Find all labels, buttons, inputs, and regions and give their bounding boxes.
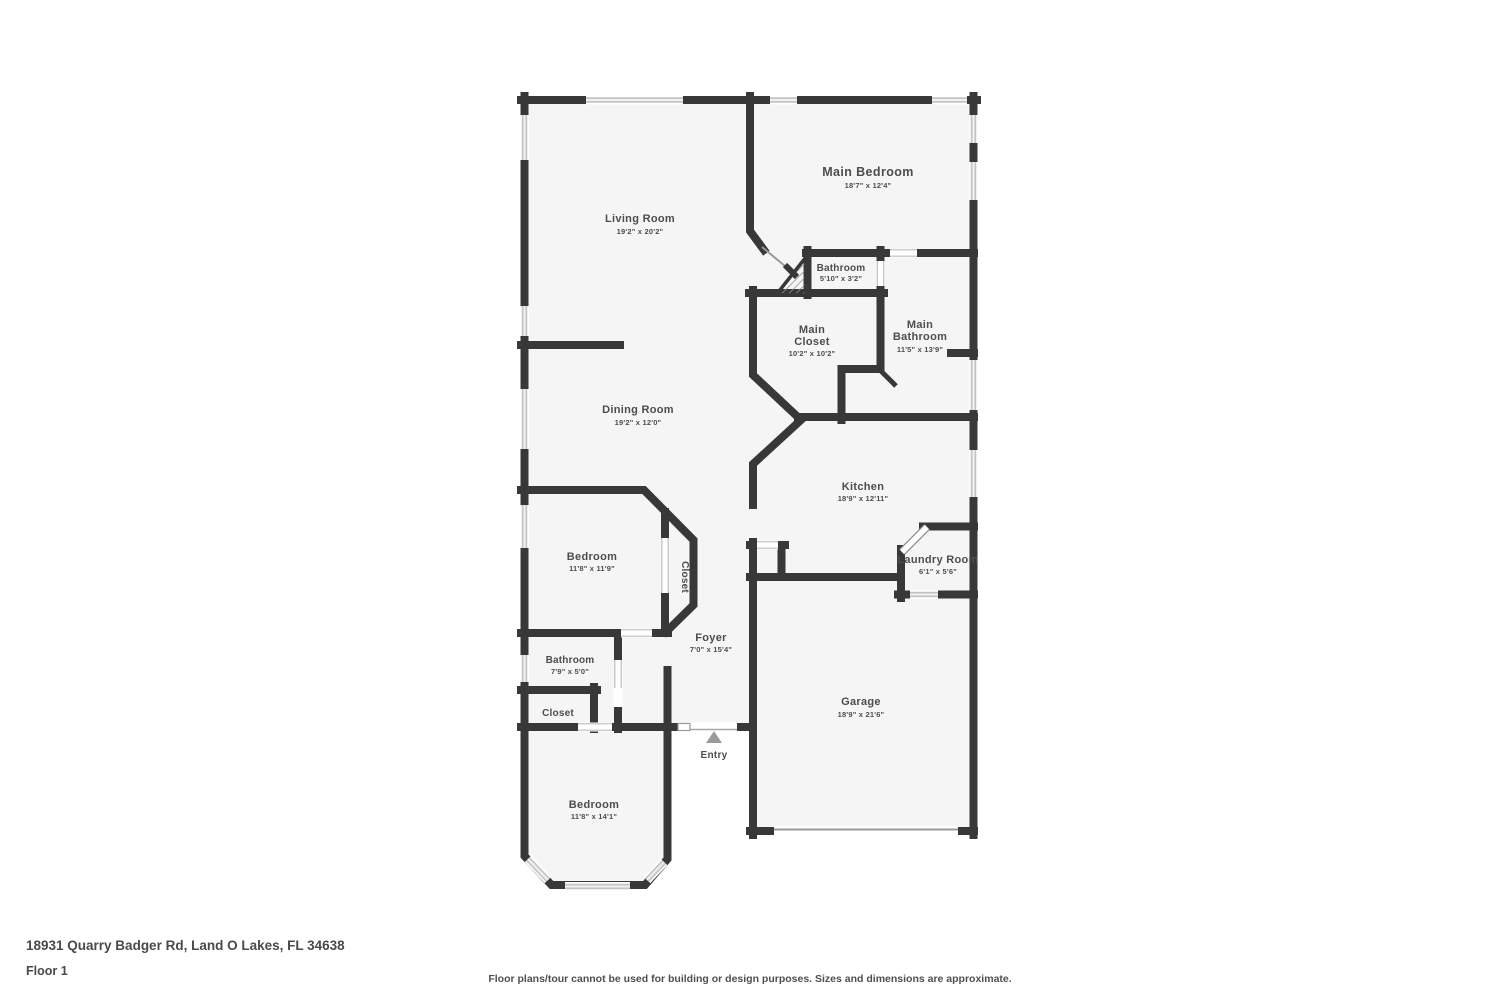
room-dims-kitchen: 18'9" x 12'11" — [838, 494, 889, 503]
room-label-foyer: Foyer — [695, 632, 727, 644]
room-label-main-closet-1: Main — [799, 324, 825, 336]
entry-marker-icon — [706, 731, 722, 743]
room-dims-bedroom-2: 11'8" x 14'1" — [571, 812, 617, 821]
room-dims-bedroom-1: 11'8" x 11'9" — [569, 564, 615, 573]
room-label-bedroom-2: Bedroom — [569, 799, 619, 811]
room-dims-main-closet: 10'2" x 10'2" — [789, 349, 836, 358]
room-label-main-closet-2: Closet — [794, 336, 829, 348]
floorplan-svg: Living Room 19'2" x 20'2" Main Bedroom 1… — [0, 0, 1500, 1000]
room-dims-living-room: 19'2" x 20'2" — [617, 227, 664, 236]
room-label-bathroom-1: Bathroom — [546, 655, 595, 666]
entry-label: Entry — [700, 750, 727, 761]
room-dims-garage: 18'9" x 21'6" — [838, 710, 885, 719]
room-dims-bathroom-small: 5'10" x 3'2" — [820, 274, 863, 283]
front-door — [678, 724, 690, 731]
room-label-living-room: Living Room — [605, 213, 675, 225]
floorplan-page: Living Room 19'2" x 20'2" Main Bedroom 1… — [0, 0, 1500, 1000]
room-label-bathroom-small: Bathroom — [817, 263, 866, 274]
footer-disclaimer: Floor plans/tour cannot be used for buil… — [0, 973, 1500, 985]
room-label-garage: Garage — [841, 696, 881, 708]
room-label-main-bathroom-2: Bathroom — [893, 331, 947, 343]
room-label-closet-2: Closet — [542, 708, 574, 719]
room-label-main-bathroom-1: Main — [907, 319, 933, 331]
room-label-bedroom-1: Bedroom — [567, 551, 617, 563]
room-dims-laundry-room: 6'1" x 5'6" — [919, 567, 957, 576]
room-dims-main-bathroom: 11'5" x 13'9" — [897, 345, 943, 354]
room-label-laundry-room: Laundry Room — [897, 554, 978, 566]
room-dims-foyer: 7'0" x 15'4" — [690, 645, 733, 654]
room-dims-main-bedroom: 18'7" x 12'4" — [845, 181, 892, 190]
room-label-kitchen: Kitchen — [842, 481, 884, 493]
room-label-closet-1: Closet — [679, 561, 690, 593]
room-dims-bathroom-1: 7'9" x 5'0" — [551, 667, 589, 676]
footer-address: 18931 Quarry Badger Rd, Land O Lakes, FL… — [26, 938, 345, 953]
room-label-main-bedroom: Main Bedroom — [822, 165, 914, 179]
room-label-dining-room: Dining Room — [602, 404, 674, 416]
room-dims-dining-room: 19'2" x 12'0" — [615, 418, 662, 427]
